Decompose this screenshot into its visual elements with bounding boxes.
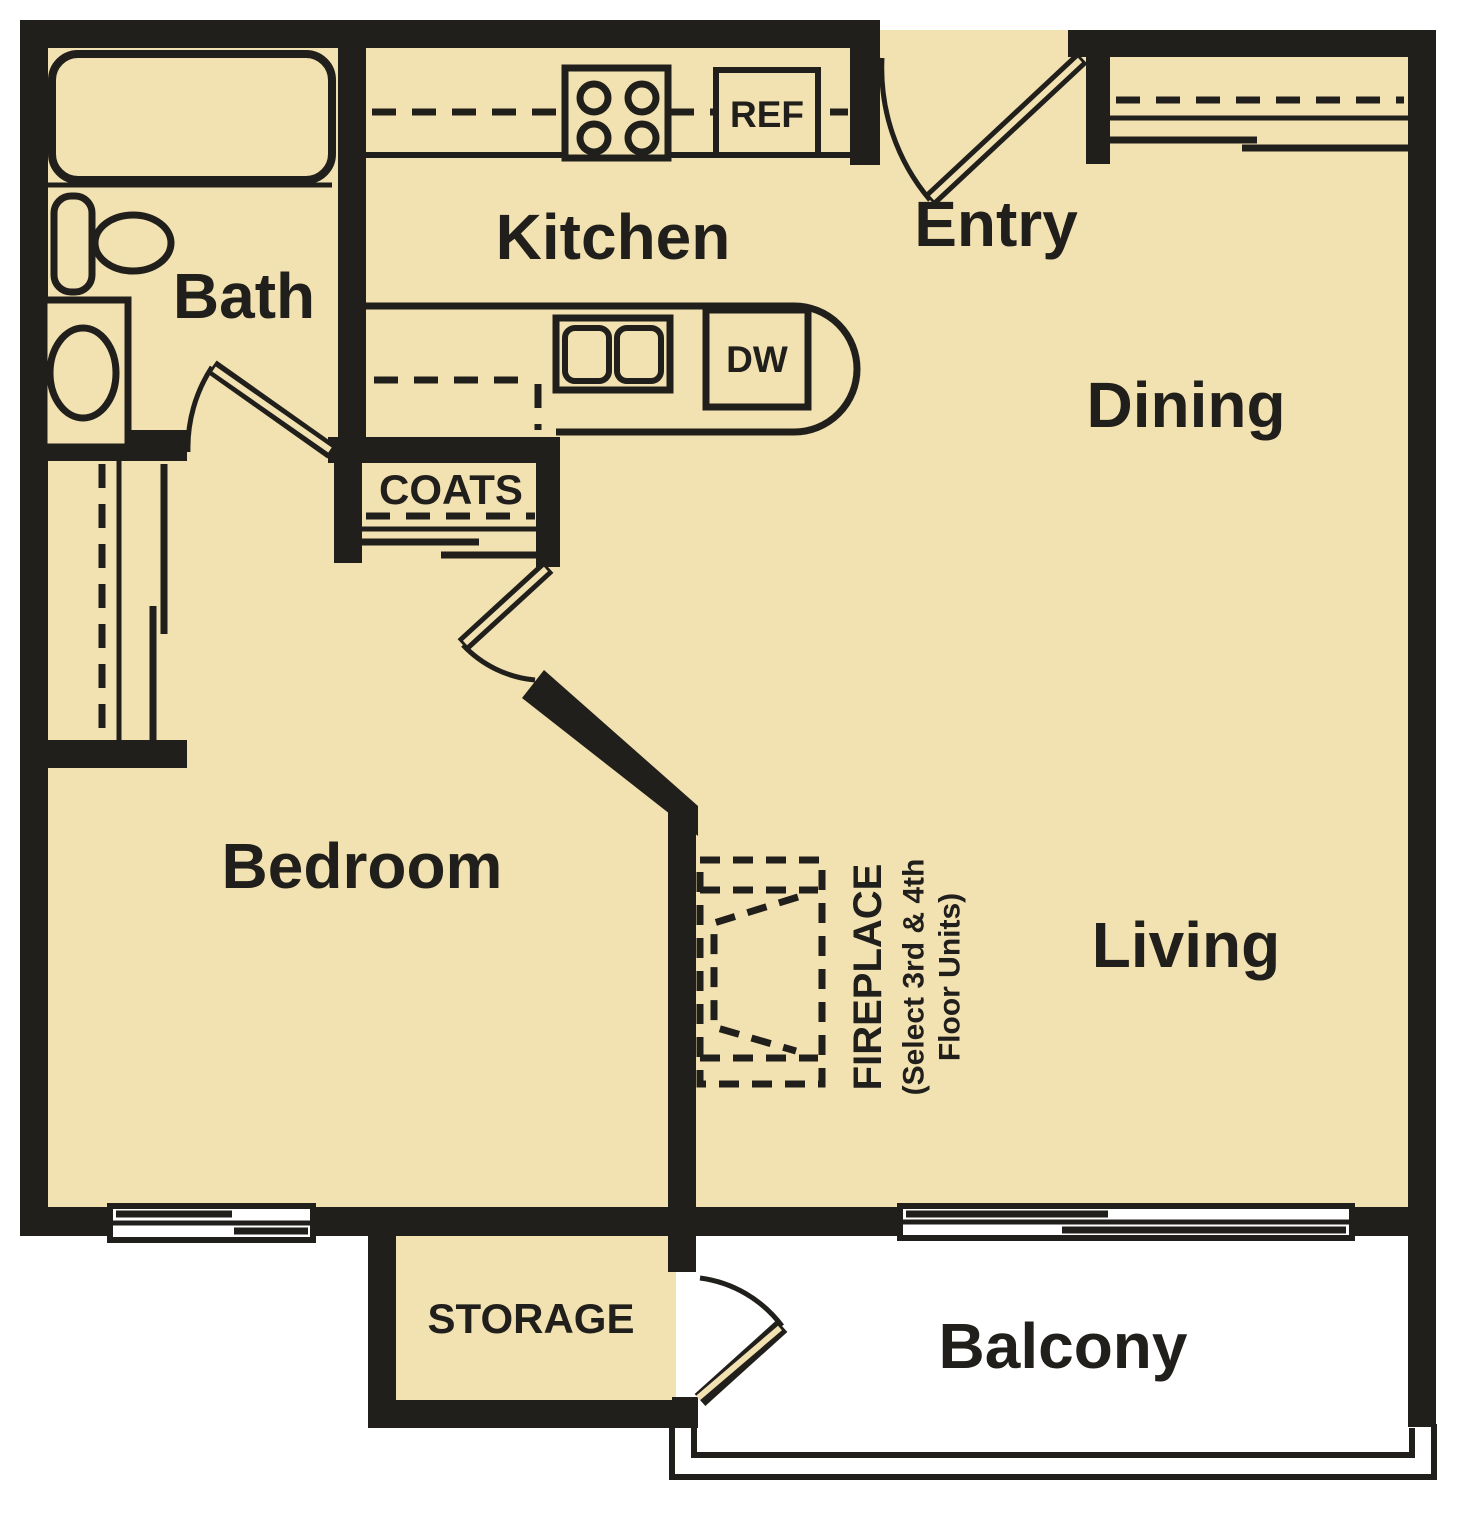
balcony-railing [672,1410,1434,1477]
wall-storage-bottom [368,1400,698,1428]
wall-coats-left-jamb [334,463,362,563]
room-label-coats: COATS [379,466,523,513]
sink-basin [617,328,661,381]
stove-burner [628,84,656,112]
floor-plan: Bath Kitchen Entry Dining Bedroom Living… [0,0,1460,1518]
room-label-bath: Bath [173,260,315,332]
appliance-label-dw: DW [726,339,788,380]
living-window [900,1206,1352,1238]
bedroom-window [110,1206,313,1240]
appliance-label-ref: REF [730,94,804,135]
room-label-storage: STORAGE [428,1295,635,1342]
toilet-bowl [95,215,171,271]
fireplace-note-line2: Floor Units) [934,893,967,1061]
bath-sink [50,328,116,418]
floor-plan-canvas: Bath Kitchen Entry Dining Bedroom Living… [0,0,1460,1518]
wall-bath-kitchen [338,20,366,437]
room-label-entry: Entry [914,188,1078,260]
fireplace-label: FIREPLACE [846,864,890,1091]
room-label-balcony: Balcony [939,1310,1188,1382]
bathtub [52,54,332,180]
wall-entry-right-jamb [1086,57,1110,164]
room-label-living: Living [1092,909,1280,981]
wall-top-left [20,20,880,48]
balcony-door-panel-core [698,1328,780,1398]
wall-top-right [1068,30,1436,57]
fireplace-note-line1: (Select 3rd & 4th [898,859,931,1096]
sink-basin [565,328,609,381]
wall-fireplace [668,810,696,1272]
wall-right [1408,30,1436,1427]
room-label-dining: Dining [1086,369,1285,441]
stove-burner [628,124,656,152]
room-label-kitchen: Kitchen [496,201,731,273]
wall-storage-left [368,1236,396,1428]
stove-burner [580,84,608,112]
room-label-bedroom: Bedroom [222,830,503,902]
wall-hall-top [328,437,560,463]
ref-label-halo: REF [730,94,804,135]
wall-entry-left-jamb [850,20,880,165]
stove-burner [580,124,608,152]
balcony-door-arc [700,1278,782,1326]
wall-coats-right-jamb [536,437,560,567]
railing-inner [694,1412,1412,1455]
railing-outer [672,1410,1434,1477]
toilet-tank [54,196,92,292]
wall-left [20,20,48,1236]
wall-closet-bottom [20,740,187,768]
